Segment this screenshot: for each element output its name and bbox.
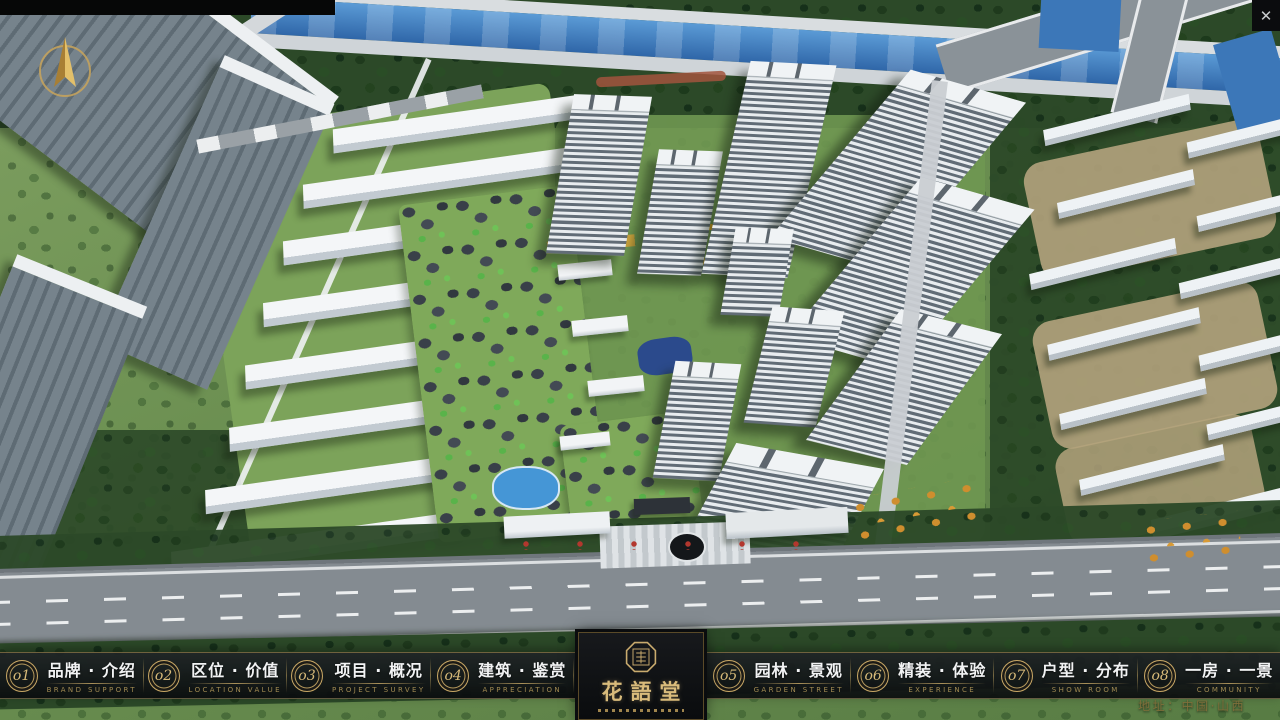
water-patch — [1039, 0, 1122, 52]
nav-number: o6 — [864, 668, 881, 684]
nav-label-cn: 品牌 · 介绍 — [48, 657, 136, 681]
aerial-view — [0, 0, 1280, 720]
nav-number-badge: o3 — [291, 660, 323, 692]
brand-logo[interactable]: 花語堂 — [578, 632, 704, 720]
app-window: ✕ o1 品牌 · 介绍 BRAND SUPPORT o2 区位 · 价值 LO… — [0, 0, 1280, 720]
gate-roof — [634, 497, 691, 515]
nav-number: o2 — [155, 668, 172, 684]
nav-label-cn: 户型 · 分布 — [1042, 657, 1130, 681]
nav-number: o7 — [1008, 668, 1025, 684]
nav-label-cn: 项目 · 概况 — [335, 657, 423, 681]
nav-number-badge: o8 — [1144, 660, 1176, 692]
nav-label-en: APPRECIATION — [482, 686, 562, 694]
close-button[interactable]: ✕ — [1252, 0, 1280, 31]
nav-underline — [754, 683, 844, 684]
nav-number: o1 — [13, 668, 30, 684]
nav-label-en: SHOW ROOM — [1052, 686, 1120, 694]
brand-logo-subtitle-ornament — [598, 709, 684, 712]
nav-number-badge: o5 — [713, 660, 745, 692]
nav-labels: 一房 · 一景 COMMUNITY — [1185, 657, 1273, 694]
nav-labels: 园林 · 景观 GARDEN STREET — [754, 657, 844, 694]
nav-number-badge: o2 — [148, 660, 180, 692]
nav-label-en: PROJECT SURVEY — [332, 686, 426, 694]
nav-label-cn: 建筑 · 鉴赏 — [478, 657, 566, 681]
close-icon: ✕ — [1260, 7, 1273, 25]
red-accent-row — [516, 540, 846, 550]
nav-underline — [332, 683, 426, 684]
nav-labels: 品牌 · 介绍 BRAND SUPPORT — [47, 657, 137, 694]
nav-labels: 区位 · 价值 LOCATION VALUE — [189, 657, 282, 694]
nav-label-cn: 园林 · 景观 — [755, 657, 843, 681]
nav-underline — [478, 683, 566, 684]
nav-item-brand-intro[interactable]: o1 品牌 · 介绍 BRAND SUPPORT — [0, 653, 143, 698]
nav-label-en: BRAND SUPPORT — [47, 686, 137, 694]
nav-number: o3 — [298, 668, 315, 684]
nav-label-cn: 区位 · 价值 — [191, 657, 279, 681]
nav-number-badge: o7 — [1001, 660, 1033, 692]
nav-number: o8 — [1151, 668, 1168, 684]
compass-icon — [33, 33, 97, 101]
top-edge-strip — [0, 0, 335, 15]
nav-underline — [1042, 683, 1130, 684]
nav-item-architecture[interactable]: o4 建筑 · 鉴赏 APPRECIATION — [431, 653, 574, 698]
nav-labels: 精装 · 体验 EXPERIENCE — [898, 657, 986, 694]
nav-label-en: COMMUNITY — [1197, 686, 1262, 694]
nav-number-badge: o6 — [857, 660, 889, 692]
address-text: 地址：中国·山西 — [1138, 697, 1246, 714]
nav-underline — [1185, 683, 1273, 684]
nav-number-badge: o4 — [437, 660, 469, 692]
nav-label-cn: 一房 · 一景 — [1185, 657, 1273, 681]
nav-label-en: LOCATION VALUE — [189, 686, 282, 694]
nav-underline — [189, 683, 282, 684]
nav-label-en: GARDEN STREET — [754, 686, 844, 694]
nav-item-project-overview[interactable]: o3 项目 · 概况 PROJECT SURVEY — [287, 653, 430, 698]
nav-item-landscape[interactable]: o5 园林 · 景观 GARDEN STREET — [707, 653, 850, 698]
seal-emblem-icon — [625, 641, 657, 673]
nav-labels: 户型 · 分布 SHOW ROOM — [1042, 657, 1130, 694]
nav-number: o5 — [720, 668, 737, 684]
nav-labels: 建筑 · 鉴赏 APPRECIATION — [478, 657, 566, 694]
nav-number: o4 — [444, 668, 461, 684]
nav-item-interior-experience[interactable]: o6 精装 · 体验 EXPERIENCE — [851, 653, 994, 698]
nav-underline — [47, 683, 137, 684]
swimming-pool — [492, 466, 560, 510]
nav-number-badge: o1 — [6, 660, 38, 692]
nav-label-cn: 精装 · 体验 — [898, 657, 986, 681]
nav-labels: 项目 · 概况 PROJECT SURVEY — [332, 657, 426, 694]
nav-item-floorplan-distribution[interactable]: o7 户型 · 分布 SHOW ROOM — [994, 653, 1137, 698]
nav-underline — [898, 683, 986, 684]
brand-logo-title: 花語堂 — [594, 676, 689, 706]
nav-item-room-view[interactable]: o8 一房 · 一景 COMMUNITY — [1138, 653, 1280, 698]
nav-item-location-value[interactable]: o2 区位 · 价值 LOCATION VALUE — [144, 653, 287, 698]
nav-label-en: EXPERIENCE — [908, 686, 976, 694]
